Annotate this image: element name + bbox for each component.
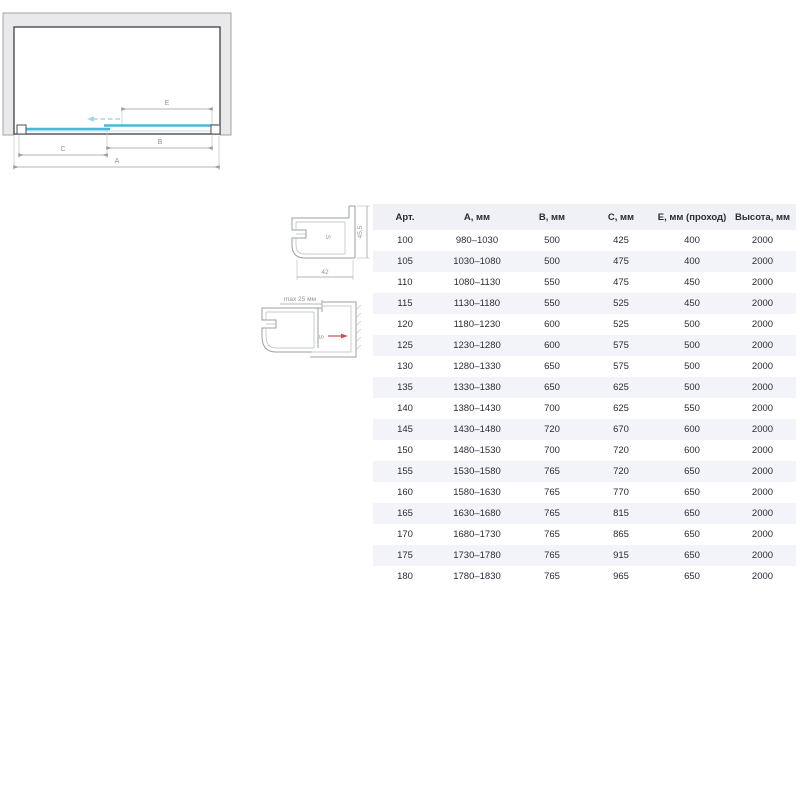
table-cell: 1130–1180 <box>437 293 517 314</box>
table-row: 1351330–13806506255002000 <box>373 377 796 398</box>
screw-channel-icon: S <box>324 235 331 240</box>
size-spec-table: Арт.А, ммВ, ммС, ммЕ, мм (проход)Высота,… <box>373 204 796 587</box>
wall-bracket-left <box>17 125 26 134</box>
table-cell: 965 <box>587 566 655 587</box>
table-cell: 650 <box>655 545 729 566</box>
table-cell: 2000 <box>729 503 796 524</box>
table-cell: 1680–1730 <box>437 524 517 545</box>
table-cell: 1430–1480 <box>437 419 517 440</box>
table-cell: 500 <box>655 356 729 377</box>
table-cell: 765 <box>517 545 587 566</box>
table-cell: 550 <box>517 293 587 314</box>
table-cell: 1180–1230 <box>437 314 517 335</box>
table-cell: 1780–1830 <box>437 566 517 587</box>
table-cell: 400 <box>655 230 729 251</box>
table-cell: 180 <box>373 566 437 587</box>
table-cell: 450 <box>655 293 729 314</box>
profile-section-bottom: S max 25 мм <box>252 290 367 362</box>
table-cell: 450 <box>655 272 729 293</box>
dim-b: B <box>107 139 212 148</box>
table-cell: 2000 <box>729 335 796 356</box>
table-cell: 650 <box>655 482 729 503</box>
table-cell: 720 <box>587 440 655 461</box>
table-cell: 110 <box>373 272 437 293</box>
profile1-width-label: 42 <box>321 269 329 276</box>
table-cell: 155 <box>373 461 437 482</box>
table-cell: 2000 <box>729 251 796 272</box>
table-cell: 135 <box>373 377 437 398</box>
table-cell: 625 <box>587 398 655 419</box>
table-row: 1651630–16807658156502000 <box>373 503 796 524</box>
table-cell: 700 <box>517 398 587 419</box>
table-row: 1751730–17807659156502000 <box>373 545 796 566</box>
table-row: 1451430–14807206706002000 <box>373 419 796 440</box>
table-cell: 115 <box>373 293 437 314</box>
table-cell: 550 <box>517 272 587 293</box>
table-cell: 125 <box>373 335 437 356</box>
profile1-dim-height: 45,5 <box>357 206 370 258</box>
table-cell: 105 <box>373 251 437 272</box>
profile1-dim-width: 42 <box>297 260 353 280</box>
table-cell: 1330–1380 <box>437 377 517 398</box>
table-cell: 2000 <box>729 398 796 419</box>
table-cell: 765 <box>517 482 587 503</box>
column-header-2: В, мм <box>517 204 587 230</box>
table-cell: 175 <box>373 545 437 566</box>
table-cell: 650 <box>517 356 587 377</box>
table-cell: 1630–1680 <box>437 503 517 524</box>
profile1-height-label: 45,5 <box>357 225 364 238</box>
table-cell: 500 <box>517 251 587 272</box>
table-cell: 575 <box>587 356 655 377</box>
table-cell: 980–1030 <box>437 230 517 251</box>
table-cell: 650 <box>655 566 729 587</box>
table-cell: 1080–1130 <box>437 272 517 293</box>
plan-view-drawing: E B C A <box>0 0 240 180</box>
table-cell: 525 <box>587 314 655 335</box>
table-cell: 475 <box>587 272 655 293</box>
table-cell: 475 <box>587 251 655 272</box>
dim-label-a: A <box>115 158 120 165</box>
table-row: 1601580–16307657706502000 <box>373 482 796 503</box>
table-cell: 2000 <box>729 545 796 566</box>
table-cell: 2000 <box>729 440 796 461</box>
table-cell: 765 <box>517 566 587 587</box>
table-row: 1801780–18307659656502000 <box>373 566 796 587</box>
table-cell: 600 <box>517 335 587 356</box>
table-row: 1401380–14307006255502000 <box>373 398 796 419</box>
table-cell: 1280–1330 <box>437 356 517 377</box>
table-cell: 1480–1530 <box>437 440 517 461</box>
table-cell: 500 <box>655 335 729 356</box>
table-cell: 425 <box>587 230 655 251</box>
table-cell: 1380–1430 <box>437 398 517 419</box>
table-row: 1251230–12806005755002000 <box>373 335 796 356</box>
wall-bracket-right <box>211 125 220 134</box>
table-cell: 720 <box>517 419 587 440</box>
column-header-1: А, мм <box>437 204 517 230</box>
profile1-outline <box>292 206 355 258</box>
column-header-0: Арт. <box>373 204 437 230</box>
column-header-3: С, мм <box>587 204 655 230</box>
table-cell: 650 <box>517 377 587 398</box>
table-cell: 2000 <box>729 419 796 440</box>
profile2-dim-max: max 25 мм <box>280 296 322 308</box>
table-cell: 1030–1080 <box>437 251 517 272</box>
table-cell: 500 <box>655 314 729 335</box>
table-cell: 650 <box>655 524 729 545</box>
table-cell: 2000 <box>729 230 796 251</box>
table-cell: 2000 <box>729 356 796 377</box>
table-cell: 140 <box>373 398 437 419</box>
table-cell: 2000 <box>729 482 796 503</box>
table-cell: 2000 <box>729 524 796 545</box>
screw-channel-icon: S <box>317 335 324 340</box>
table-cell: 865 <box>587 524 655 545</box>
table-cell: 165 <box>373 503 437 524</box>
table-cell: 1580–1630 <box>437 482 517 503</box>
table-header-row: Арт.А, ммВ, ммС, ммЕ, мм (проход)Высота,… <box>373 204 796 230</box>
table-row: 1301280–13306505755002000 <box>373 356 796 377</box>
table-row: 1551530–15807657206502000 <box>373 461 796 482</box>
table-cell: 130 <box>373 356 437 377</box>
profile-section-top: S 42 45,5 <box>252 197 387 289</box>
wall-hatching <box>356 305 361 350</box>
table-cell: 525 <box>587 293 655 314</box>
table-cell: 2000 <box>729 377 796 398</box>
table-cell: 100 <box>373 230 437 251</box>
table-cell: 2000 <box>729 314 796 335</box>
table-cell: 400 <box>655 251 729 272</box>
dim-label-e: E <box>165 100 170 107</box>
dim-c: C <box>19 146 107 155</box>
table-cell: 2000 <box>729 272 796 293</box>
table-cell: 765 <box>517 503 587 524</box>
table-cell: 765 <box>517 524 587 545</box>
dim-label-b: B <box>158 139 163 146</box>
table-cell: 700 <box>517 440 587 461</box>
table-row: 1101080–11305504754502000 <box>373 272 796 293</box>
table-cell: 650 <box>655 503 729 524</box>
column-header-5: Высота, мм <box>729 204 796 230</box>
table-cell: 170 <box>373 524 437 545</box>
table-cell: 670 <box>587 419 655 440</box>
table-cell: 765 <box>517 461 587 482</box>
table-cell: 720 <box>587 461 655 482</box>
adjustment-arrow <box>328 334 348 339</box>
table-row: 1501480–15307007206002000 <box>373 440 796 461</box>
table-cell: 2000 <box>729 293 796 314</box>
table-cell: 1230–1280 <box>437 335 517 356</box>
table-cell: 2000 <box>729 461 796 482</box>
table-cell: 1730–1780 <box>437 545 517 566</box>
table-cell: 815 <box>587 503 655 524</box>
enclosure-outline <box>14 27 220 134</box>
dim-label-c: C <box>60 146 65 153</box>
table-cell: 600 <box>655 440 729 461</box>
table-cell: 120 <box>373 314 437 335</box>
table-row: 1151130–11805505254502000 <box>373 293 796 314</box>
table-cell: 915 <box>587 545 655 566</box>
table-cell: 160 <box>373 482 437 503</box>
table-cell: 575 <box>587 335 655 356</box>
table-row: 1051030–10805004754002000 <box>373 251 796 272</box>
column-header-4: Е, мм (проход) <box>655 204 729 230</box>
table-cell: 770 <box>587 482 655 503</box>
table-cell: 650 <box>655 461 729 482</box>
table-cell: 600 <box>655 419 729 440</box>
table-row: 100980–10305004254002000 <box>373 230 796 251</box>
table-cell: 550 <box>655 398 729 419</box>
table-cell: 145 <box>373 419 437 440</box>
profile2-max-label: max 25 мм <box>284 296 317 303</box>
table-cell: 500 <box>655 377 729 398</box>
table-cell: 1530–1580 <box>437 461 517 482</box>
table-cell: 150 <box>373 440 437 461</box>
spec-table: Арт.А, ммВ, ммС, ммЕ, мм (проход)Высота,… <box>373 204 796 587</box>
table-row: 1701680–17307658656502000 <box>373 524 796 545</box>
dim-a: A <box>14 158 219 167</box>
profile2-wall-channel <box>310 302 356 357</box>
table-cell: 2000 <box>729 566 796 587</box>
table-cell: 500 <box>517 230 587 251</box>
table-cell: 600 <box>517 314 587 335</box>
profile2-outline <box>262 308 322 352</box>
table-cell: 625 <box>587 377 655 398</box>
table-header: Арт.А, ммВ, ммС, ммЕ, мм (проход)Высота,… <box>373 204 796 230</box>
table-row: 1201180–12306005255002000 <box>373 314 796 335</box>
